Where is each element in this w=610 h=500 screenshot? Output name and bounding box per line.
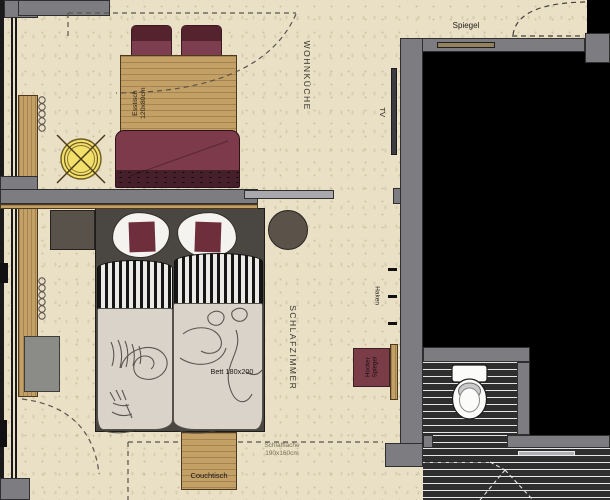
coat-hook	[388, 322, 397, 325]
floor-plan: Spiegel TV Haken Hocker Spiegel Esstisch…	[0, 0, 610, 500]
shower-floor	[423, 448, 610, 500]
stool-labels: Hocker Spiegel	[364, 350, 378, 385]
tv-panel	[391, 68, 397, 155]
pillow-accent	[194, 222, 221, 253]
nightstand	[50, 210, 95, 250]
wall-bath-bottom-band	[507, 435, 610, 448]
bed-blanket-striped	[97, 260, 173, 312]
room-label-living-kitchen: WOHNKÜCHE	[301, 36, 311, 116]
coffee-table-label: Couchtisch	[181, 472, 237, 480]
pillow-accent	[129, 222, 156, 253]
bed-duvet	[97, 308, 173, 430]
stool-label-line2: Spiegel	[372, 350, 379, 385]
bed-label: Bett 180x200	[200, 368, 264, 376]
coat-hook	[388, 295, 397, 298]
void-main	[423, 52, 610, 348]
wall-wc-niche-right	[517, 362, 530, 435]
dresser	[24, 336, 60, 392]
hooks-label: Haken	[373, 276, 380, 316]
wall-mirror	[437, 42, 495, 48]
chair-backrest	[132, 26, 171, 41]
stool-label-line1: Hocker	[364, 350, 371, 385]
dining-table-label-line1: Esstisch	[132, 75, 140, 131]
wall-entry-top-left	[18, 0, 110, 16]
wall-pier-bottom-left	[0, 478, 30, 500]
window-mullion-block	[0, 420, 7, 447]
wall-foot	[385, 443, 423, 467]
bath-passage-floor	[433, 435, 507, 448]
chair-backrest	[182, 26, 221, 41]
room-label-bedroom: SCHLAFZIMMER	[287, 303, 297, 393]
bed-blanket-striped	[174, 253, 263, 309]
door-swing-arc	[512, 2, 586, 36]
coat-hook	[388, 268, 397, 271]
ceiling-light-icon	[57, 135, 105, 183]
sliding-door	[244, 190, 334, 199]
dining-table-label-line2: 120x80cm	[140, 75, 148, 131]
coffee-table	[181, 432, 237, 490]
window-glazing-line	[11, 16, 13, 478]
wall-mirror-label: Spiegel	[434, 22, 498, 31]
wall-wc-niche-left-step	[423, 435, 433, 448]
side-table-round	[268, 210, 308, 250]
sofa	[115, 130, 240, 188]
door-swing-arc	[22, 399, 99, 474]
sofa-front-band	[116, 170, 239, 187]
sofa-bed-label-line1: Schlaffläche	[256, 442, 308, 450]
wall-shelf-wood	[390, 344, 398, 400]
void-top-right-corner	[587, 0, 610, 35]
wc-niche-floor	[423, 362, 517, 435]
wall-wc-niche-top	[423, 347, 530, 362]
divider-wood-strip	[0, 204, 258, 209]
sofa-bed-area-label: Schlaffläche 190x160cm	[256, 442, 308, 458]
stool: Hocker Spiegel	[353, 348, 390, 387]
wall-vertical-main	[400, 38, 423, 467]
tv-label: TV	[378, 102, 386, 122]
dining-table-label: Esstisch 120x80cm	[132, 75, 148, 131]
window-mullion-block	[0, 263, 8, 283]
wall-protrusion	[393, 188, 401, 204]
window-glazing-line	[15, 16, 17, 478]
shower-glass-bar	[518, 451, 575, 456]
sofa-bed-label-line2: 190x160cm	[256, 450, 308, 458]
wall-return-top-right	[585, 33, 610, 63]
void-right-lower	[528, 347, 610, 436]
wall-divider	[0, 189, 258, 204]
